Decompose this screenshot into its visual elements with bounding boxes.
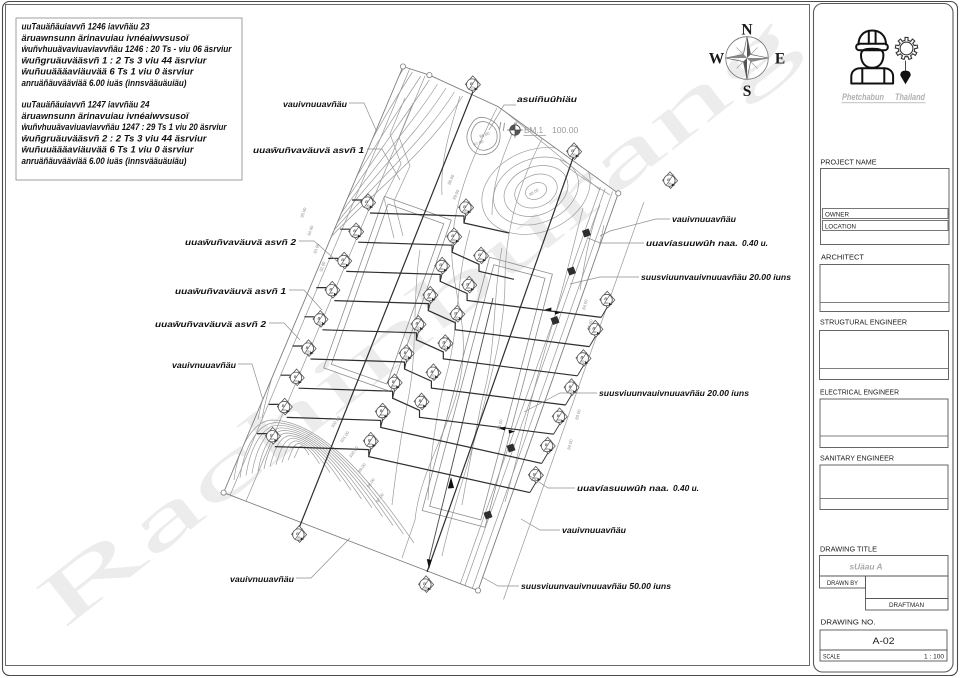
svg-text:ELECTRICAL ENGINEER: ELECTRICAL ENGINEER	[820, 389, 899, 397]
svg-text:anruäñäuvääviää 6.00 iuäs (inn: anruäñäuvääviää 6.00 iuäs (innsvääuäuiäu…	[22, 156, 187, 166]
svg-text:1 : 100: 1 : 100	[924, 654, 944, 661]
svg-text:sUäau A: sUäau A	[850, 563, 883, 572]
svg-text:uuTauäñäuiavvñ 1247 iavvñäu: uuTauäñäuiavvñ 1247 iavvñäu 24	[22, 100, 150, 110]
svg-text:BM.1: BM.1	[524, 126, 544, 135]
svg-text:DRAWN BY: DRAWN BY	[827, 580, 859, 587]
svg-text:99.00: 99.00	[357, 462, 367, 474]
svg-text:ŵuñuuäääaviäuvää 6 Ts 1 vi: ŵuñuuäääaviäuvää 6 Ts 1 viu 0 äsrviur	[22, 145, 195, 155]
svg-text:anruäñäuvääviää 6.00 iuäs (inn: anruäñäuvääviää 6.00 iuäs (innsvääuäuiäu…	[22, 78, 187, 88]
svg-text:93.00: 93.00	[312, 242, 321, 254]
svg-text:vauivnuuavñäu: vauivnuuavñäu	[562, 526, 626, 535]
svg-text:suusviuunvauivnuuavñäu 50.00 i: suusviuunvauivnuuavñäu 50.00 iuns	[521, 582, 671, 591]
svg-text:100.00: 100.00	[348, 445, 360, 459]
svg-text:Phetchabun: Phetchabun	[842, 92, 884, 103]
svg-text:ŵuñgruäuvääsvñ 1 : 2 Ts 3 v: ŵuñgruäuvääsvñ 1 : 2 Ts 3 viu 44 äsrviur	[22, 55, 208, 65]
svg-text:uuavíasuuwûh naa.: uuavíasuuwûh naa.	[577, 484, 669, 493]
svg-text:suusviuunvauivnuuavñäu 20.00 i: suusviuunvauivnuuavñäu 20.00 iuns	[599, 389, 749, 398]
svg-text:asuiñuûhiäu: asuiñuûhiäu	[517, 95, 577, 104]
svg-text:suusviuunvauivnuuavñäu 20.00 i: suusviuunvauivnuuavñäu 20.00 iuns	[641, 273, 791, 282]
svg-text:DRAFTMAN: DRAFTMAN	[889, 602, 924, 609]
svg-text:86.00: 86.00	[479, 130, 491, 139]
svg-text:äruawnsunn ärinavuiau ivnéai: äruawnsunn ärinavuiau ivnéaiwvsusoï	[22, 111, 191, 121]
svg-text:S: S	[743, 83, 752, 100]
svg-text:uuTauäñäuiavvñ 1246 iavvñäu: uuTauäñäuiavvñ 1246 iavvñäu 23	[22, 22, 150, 32]
svg-text:83.00: 83.00	[574, 408, 582, 420]
svg-text:A-02: A-02	[873, 636, 895, 646]
svg-text:ŵuñgruäuvääsvñ 2 : 2 Ts 3 v: ŵuñgruäuvääsvñ 2 : 2 Ts 3 viu 44 äsrviur	[22, 133, 208, 143]
svg-text:84.00: 84.00	[566, 438, 574, 450]
svg-text:94.00: 94.00	[306, 224, 315, 236]
svg-text:uuaŵuñvaväuvä asvñ 2: uuaŵuñvaväuvä asvñ 2	[155, 320, 267, 329]
svg-text:STRUGTURAL ENGINEER: STRUGTURAL ENGINEER	[820, 319, 907, 327]
svg-text:88.00: 88.00	[446, 173, 455, 185]
svg-text:95.00: 95.00	[299, 206, 308, 218]
svg-text:92.00: 92.00	[318, 260, 327, 272]
svg-text:uuavíasuuwûh naa.: uuavíasuuwûh naa.	[646, 239, 738, 248]
svg-text:84.00: 84.00	[581, 298, 589, 310]
svg-text:E: E	[775, 51, 785, 68]
svg-text:0.40 u.: 0.40 u.	[742, 239, 768, 248]
svg-text:uuaŵuñvaväuvä asvñ 1: uuaŵuñvaväuvä asvñ 1	[253, 146, 365, 155]
svg-text:W: W	[709, 51, 725, 68]
svg-text:LOCATION: LOCATION	[825, 223, 856, 230]
svg-text:vauivnuuavñäu: vauivnuuavñäu	[283, 100, 347, 109]
svg-text:OWNER: OWNER	[825, 211, 849, 218]
svg-text:ŵuñvhuuävaviuaviavvñäu 1246 :: ŵuñvhuuävaviuaviavvñäu 1246 : 20 Ts - vi…	[22, 44, 232, 54]
svg-text:vauivnuuavñäu: vauivnuuavñäu	[672, 215, 736, 224]
svg-text:uuaŵuñvaväuvä asvñ 1: uuaŵuñvaväuvä asvñ 1	[175, 287, 287, 296]
svg-text:100.00: 100.00	[552, 125, 579, 135]
svg-text:ŵuñuuäääaviäuvää 6 Ts 1 vi: ŵuñuuäääaviäuvää 6 Ts 1 viu 0 äsrviur	[22, 67, 195, 77]
svg-text:DRAWING TITLE: DRAWING TITLE	[820, 546, 877, 554]
svg-text:0.40 u.: 0.40 u.	[673, 484, 699, 493]
svg-text:äruawnsunn ärinavuiau ivnéai: äruawnsunn ärinavuiau ivnéaiwvsusoï	[22, 33, 191, 43]
svg-text:vauivnuuavñäu: vauivnuuavñäu	[230, 575, 294, 584]
svg-text:DRAWING NO.: DRAWING NO.	[821, 619, 876, 627]
svg-text:Thailand: Thailand	[895, 92, 925, 103]
svg-text:N: N	[741, 22, 752, 39]
svg-text:ARCHITECT: ARCHITECT	[821, 254, 865, 262]
svg-text:ŵuñvhuuävaviuaviavvñäu 1247 :: ŵuñvhuuävaviuaviavvñäu 1247 : 29 Ts 1 vi…	[22, 122, 227, 132]
svg-text:PROJECT NAME: PROJECT NAME	[821, 159, 877, 167]
svg-text:98.00: 98.00	[366, 477, 376, 489]
svg-text:vauivnuuavñäu: vauivnuuavñäu	[172, 361, 236, 370]
svg-text:uuaŵuñvaväuvä asvñ 2: uuaŵuñvaväuvä asvñ 2	[185, 238, 297, 247]
svg-text:SCALE: SCALE	[823, 654, 840, 661]
svg-text:SANITARY ENGINEER: SANITARY ENGINEER	[820, 455, 894, 463]
